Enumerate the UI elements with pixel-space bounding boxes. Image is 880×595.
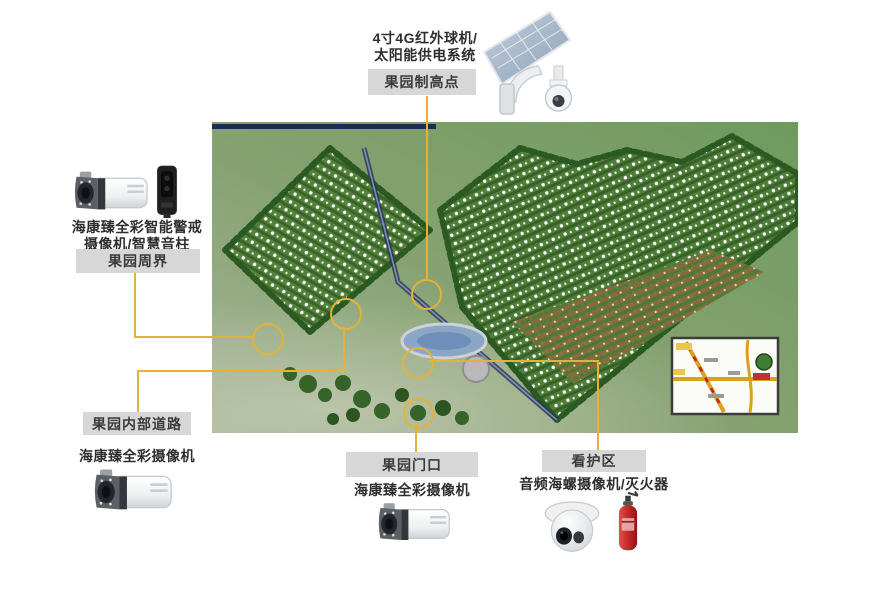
zone-box-gate: 果园门口 [346, 452, 478, 477]
orchard-aerial-image [212, 122, 798, 433]
perimeter-device-label: 海康臻全彩智能警戒 摄像机/智慧音柱 [48, 219, 226, 252]
connector-care-v [597, 360, 599, 450]
zone-box-perimeter: 果园周界 [76, 249, 200, 273]
connector-road-v2 [343, 327, 345, 372]
marker-care-area [402, 347, 434, 379]
solution-diagram: 4寸4G红外球机/ 太阳能供电系统 果园制高点 [0, 0, 880, 595]
care-area-device-label: 音频海螺摄像机/灭火器 [512, 476, 676, 493]
bullet-camera-icon [70, 166, 152, 220]
bullet-camera-icon [86, 466, 180, 518]
connector-perimeter-h [134, 336, 253, 338]
map-park-icon [756, 354, 772, 370]
bullet-camera-icon [370, 500, 458, 548]
marker-high-point [411, 279, 442, 310]
connector-gate [415, 424, 417, 452]
zone-box-internal-road: 果园内部道路 [83, 412, 191, 435]
connector-road-v1 [137, 370, 139, 413]
connector-perimeter-v [134, 273, 136, 337]
fire-extinguisher-icon [614, 490, 642, 556]
smart-speaker-column-icon [154, 164, 180, 220]
zone-box-care-area: 看护区 [542, 450, 646, 472]
connector-high-point [426, 96, 428, 280]
zone-box-high-point: 果园制高点 [368, 69, 476, 95]
solar-panel-ptz-camera-icon [476, 10, 588, 118]
location-map-inset [672, 338, 778, 414]
connector-care-h [429, 360, 599, 362]
marker-gate [403, 398, 434, 429]
marker-perimeter [252, 323, 284, 355]
turret-camera-icon [538, 496, 606, 556]
marker-internal-road [330, 298, 362, 330]
map-marker [753, 373, 770, 380]
connector-road-h [137, 370, 345, 372]
top-road-strip [212, 124, 436, 129]
internal-road-device-label: 海康臻全彩摄像机 [58, 448, 216, 465]
gate-device-label: 海康臻全彩摄像机 [333, 482, 491, 499]
